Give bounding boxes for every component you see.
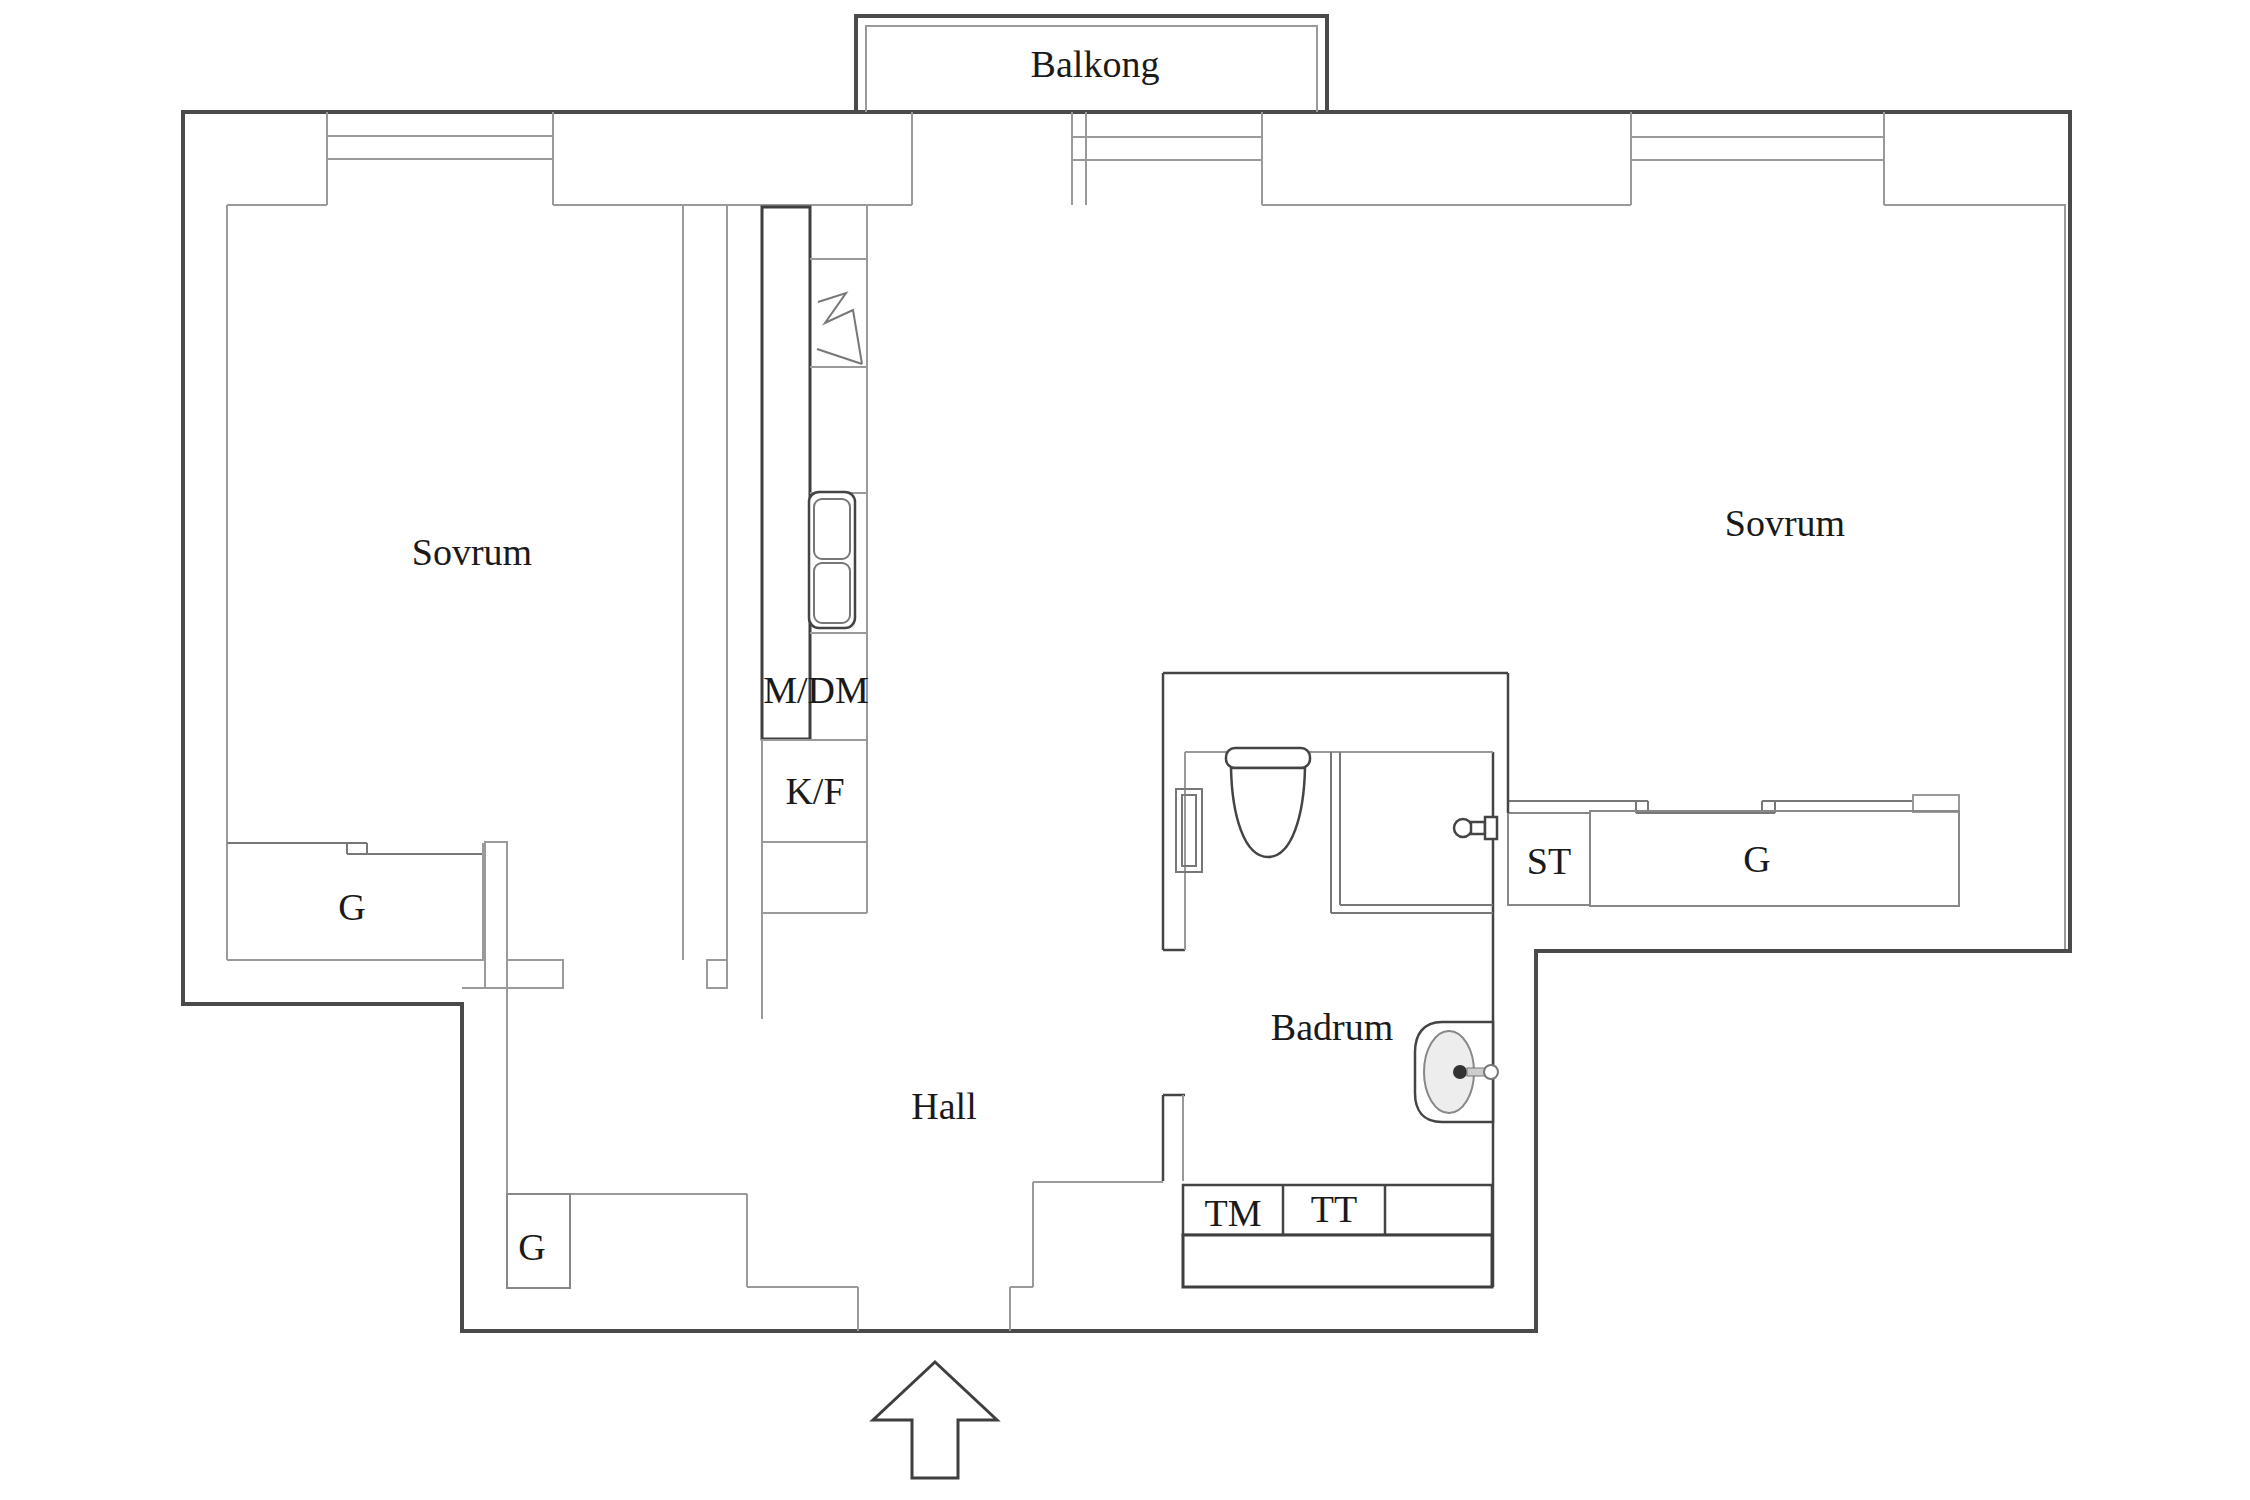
window-bedroom-right (1631, 112, 1884, 205)
top-wall-inner-lines (227, 205, 2066, 949)
wall-pier (1913, 795, 1959, 812)
window-living-left (1072, 112, 1262, 205)
bedroom-right: ST G Sovrum (1508, 502, 1959, 906)
cleaning-cabinet-label: ST (1527, 840, 1571, 882)
bedroom-right-label: Sovrum (1725, 502, 1845, 544)
wall-stub (507, 960, 563, 988)
balcony-label: Balkong (1031, 43, 1160, 85)
wall-pillar (485, 842, 507, 988)
apartment-outline (183, 112, 2070, 1331)
kitchen-sink-icon (809, 492, 855, 628)
laundry-row: TM TT (1183, 1185, 1492, 1287)
hall-label: Hall (911, 1085, 976, 1127)
toilet-icon (1226, 748, 1310, 857)
wall-notch (707, 960, 727, 988)
shower-mixer-icon (1454, 817, 1497, 839)
washing-machine-label: TM (1205, 1192, 1262, 1234)
kitchen-counter-bar (762, 207, 810, 739)
bathroom-label: Badrum (1271, 1006, 1393, 1048)
hall: G Hall (507, 988, 1163, 1331)
bedroom-left: G Sovrum (227, 205, 727, 988)
shower-icon (1331, 752, 1497, 913)
tumble-dryer-label: TT (1311, 1188, 1357, 1230)
entrance-arrow-icon (873, 1362, 997, 1478)
radiator-icon (1176, 789, 1202, 872)
microwave-dishwasher-label: M/DM (763, 669, 869, 711)
bench (1183, 1235, 1492, 1287)
sliding-door-icon (227, 843, 483, 854)
stove-icon (817, 293, 862, 364)
wardrobe-label: G (518, 1226, 545, 1268)
wardrobe-label: G (1743, 838, 1770, 880)
kitchen: M/DM K/F (762, 205, 869, 1019)
wardrobe-label: G (338, 886, 365, 928)
bedroom-left-label: Sovrum (412, 531, 532, 573)
floor-plan: Balkong (0, 0, 2250, 1500)
balcony: Balkong (856, 16, 1327, 112)
bathroom: TM TT Badrum (1163, 673, 1508, 1287)
fridge-freezer-label: K/F (785, 770, 844, 812)
wardrobe-bedroom-right (1590, 811, 1959, 906)
floor-plan-drawing: Balkong (0, 0, 2250, 1500)
wardrobe-bedroom-left: G (227, 843, 483, 960)
bathroom-sink-icon (1415, 1022, 1498, 1122)
window-bedroom-left (327, 112, 553, 205)
